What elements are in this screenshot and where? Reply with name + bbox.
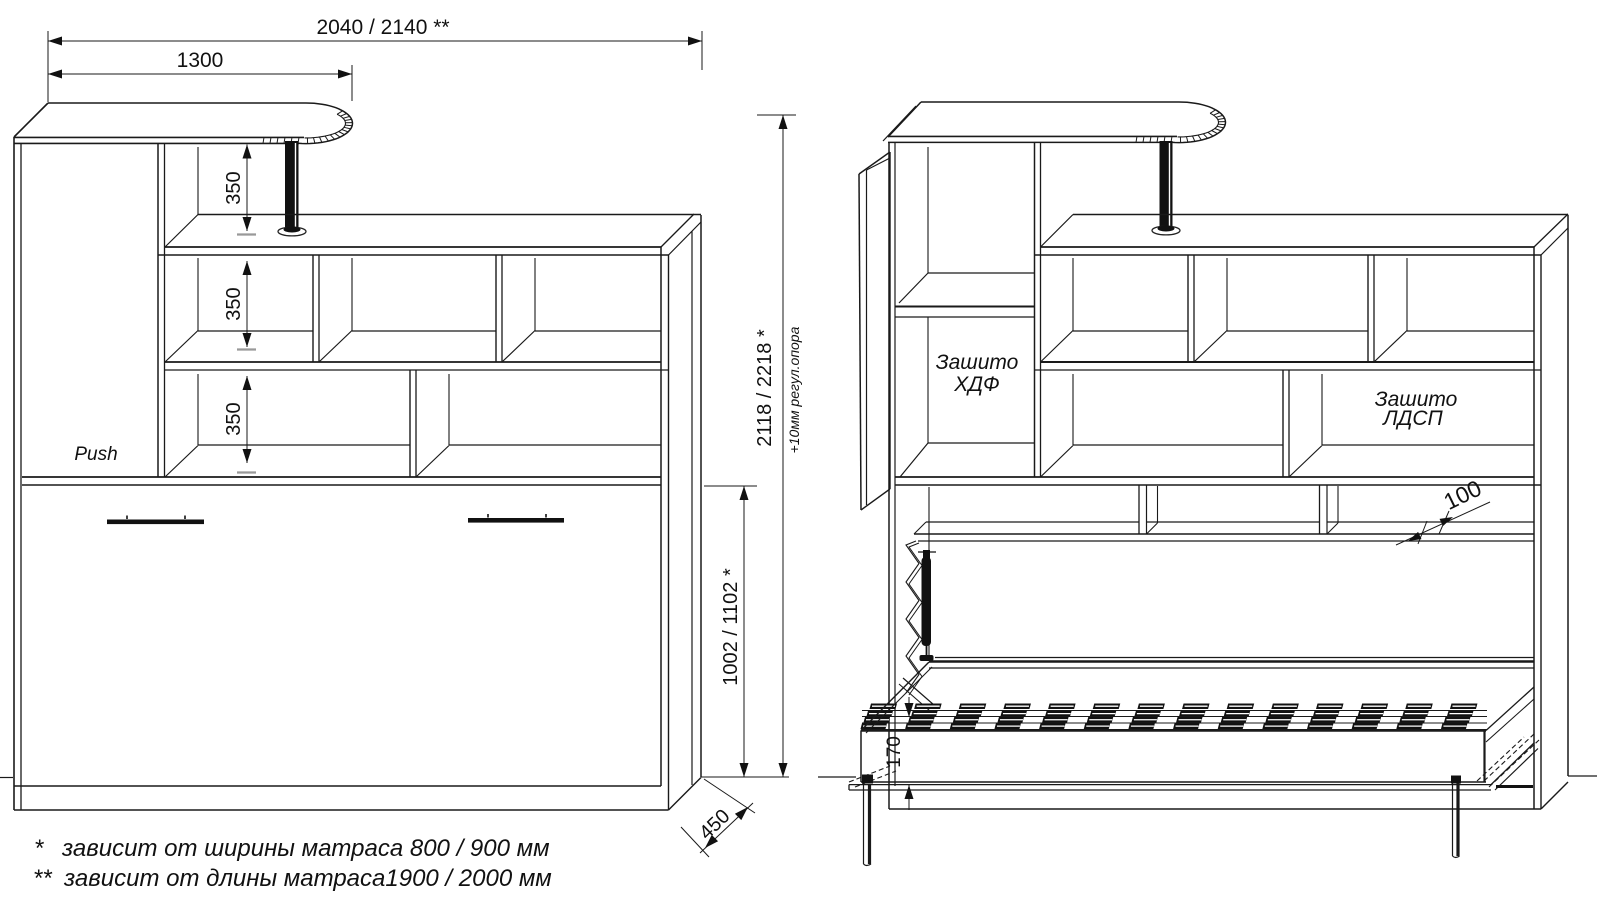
svg-text:350: 350 (223, 402, 245, 435)
svg-text:2118 / 2218 *: 2118 / 2218 * (754, 329, 776, 447)
svg-text:350: 350 (223, 171, 245, 204)
svg-text:зависит от длины матраса1900 /: зависит от длины матраса1900 / 2000 мм (63, 865, 552, 892)
svg-text:ЛДСП: ЛДСП (1381, 407, 1443, 430)
svg-text:ХДФ: ХДФ (953, 373, 1000, 396)
svg-text:зависит от ширины матраса 800: зависит от ширины матраса 800 / 900 мм (61, 835, 550, 862)
svg-text:**: ** (33, 865, 52, 892)
svg-text:Зашито: Зашито (936, 351, 1019, 374)
svg-text:1002 / 1102 *: 1002 / 1102 * (720, 568, 742, 686)
svg-text:Push: Push (74, 444, 117, 465)
svg-text:350: 350 (223, 287, 245, 320)
svg-text:2040 / 2140 **: 2040 / 2140 ** (316, 16, 449, 39)
svg-text:*: * (34, 835, 44, 862)
svg-text:+10мм регул.опора: +10мм регул.опора (786, 326, 802, 453)
svg-text:170: 170 (884, 736, 905, 768)
svg-text:1300: 1300 (177, 49, 224, 72)
